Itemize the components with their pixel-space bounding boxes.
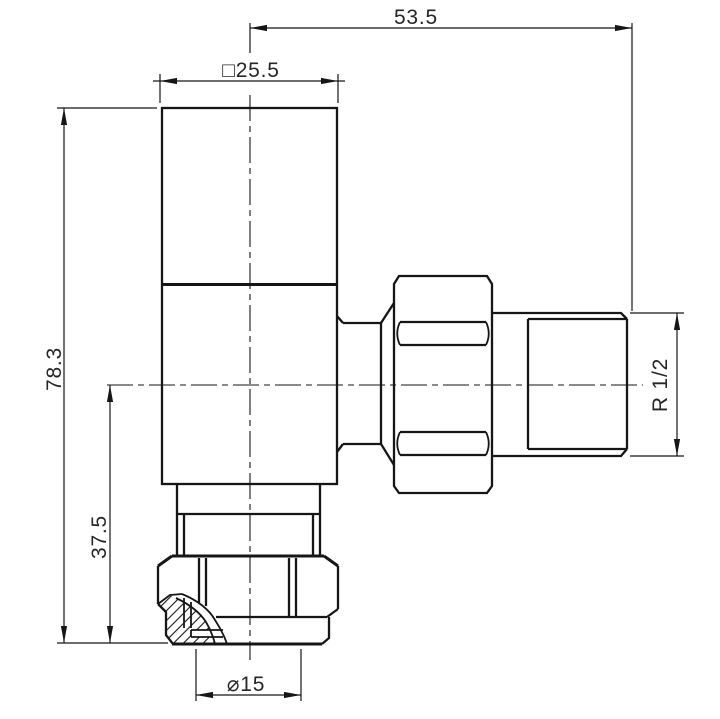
- dimension-head-square: □25.5: [153, 59, 345, 103]
- dim-label-thread: R 1/2: [649, 358, 672, 412]
- centerlines: [107, 95, 643, 660]
- arrowhead-left-icon: [160, 78, 177, 84]
- arrowhead-up-icon: [107, 385, 113, 402]
- dim-lines-78-3: [57, 108, 168, 643]
- dim-lines-53-5: [250, 23, 632, 311]
- dimension-offset-width: 53.5: [250, 6, 632, 311]
- dim-label-head-square: □25.5: [222, 59, 280, 82]
- dim-label-pipe-diameter: ⌀15: [227, 673, 265, 696]
- dimension-thread: R 1/2: [630, 313, 684, 456]
- stem-lines: [337, 316, 381, 452]
- neck-lines: [177, 484, 320, 556]
- union-nut-facet-lines: [400, 322, 486, 455]
- olive-band-background: [191, 630, 223, 637]
- thread-root-lines: [528, 319, 627, 449]
- arrowhead-up-icon: [61, 108, 67, 125]
- drawing-sheet: 53.5 □25.5 78.3 37.5 R 1/2: [0, 0, 720, 719]
- dim-label-inlet-height: 37.5: [88, 515, 111, 559]
- dimension-overall-height: 78.3: [43, 108, 168, 643]
- compression-nut-facets: [199, 558, 296, 616]
- bonnet-neck: [177, 484, 320, 556]
- flange-right-edge: [322, 617, 329, 644]
- arrowhead-right-icon: [615, 25, 632, 31]
- stem-cone-lines: [381, 303, 394, 465]
- arrowhead-down-icon: [674, 439, 680, 456]
- arrowhead-left-icon: [196, 692, 213, 698]
- dimension-pipe-diameter: ⌀15: [196, 649, 301, 701]
- arrowhead-right-icon: [321, 78, 338, 84]
- arrowhead-up-icon: [674, 313, 680, 330]
- arrowhead-down-icon: [107, 626, 113, 643]
- section-cutaway: [158, 594, 227, 644]
- arrowhead-right-icon: [284, 692, 301, 698]
- dim-label-offset-width: 53.5: [394, 6, 438, 29]
- dimension-inlet-height: 37.5: [88, 385, 113, 643]
- arrowhead-left-icon: [250, 25, 267, 31]
- union-nut-facet-arcs: [397, 322, 489, 455]
- arrowhead-down-icon: [61, 626, 67, 643]
- dim-label-overall-height: 78.3: [43, 347, 66, 391]
- valve-technical-drawing: 53.5 □25.5 78.3 37.5 R 1/2: [0, 0, 720, 719]
- outlet-stem: [337, 303, 394, 465]
- compression-nut-top: [158, 556, 338, 566]
